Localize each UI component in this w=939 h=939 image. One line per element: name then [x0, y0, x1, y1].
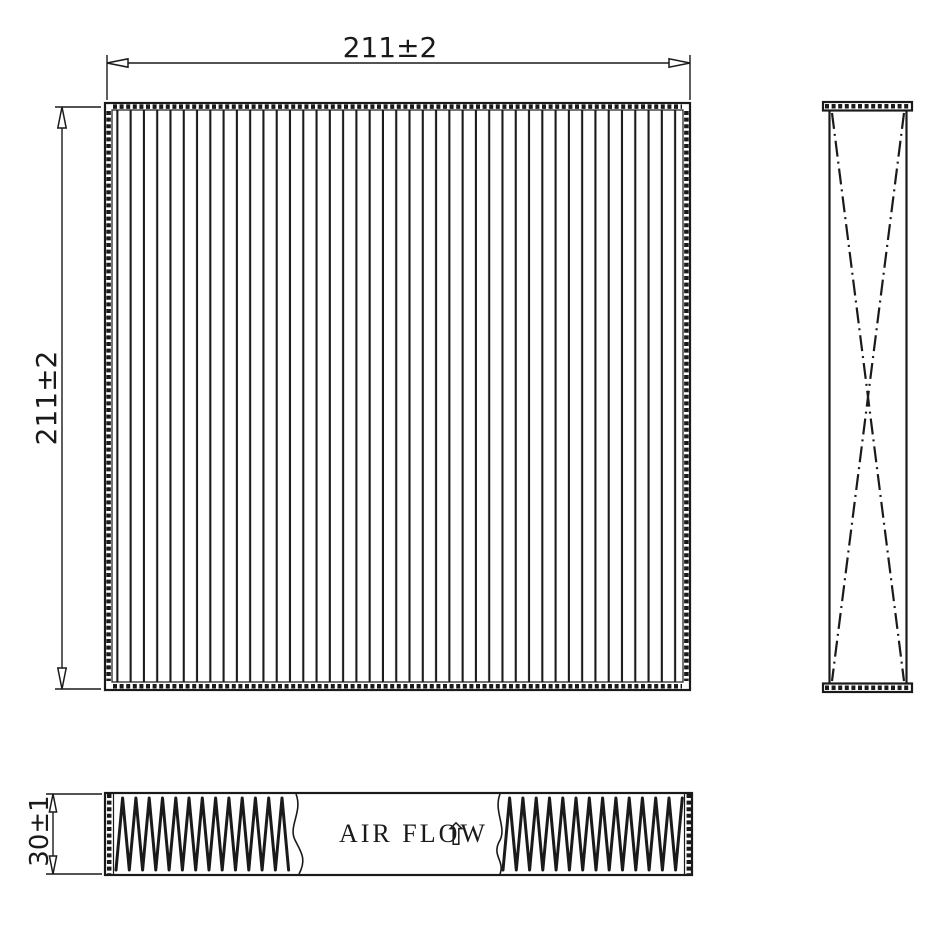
width-dimension: 211±2 [107, 31, 690, 100]
front-view [105, 103, 690, 690]
arrowhead-down-icon [58, 668, 66, 689]
height-dimension: 211±2 [30, 107, 101, 689]
side-view [823, 102, 912, 692]
arrowhead-up-icon [58, 107, 66, 128]
height-dim-label: 211±2 [30, 351, 63, 446]
air-flow-up-arrow-icon: ⇧ [443, 817, 469, 853]
bottom-view-pleats-right [503, 798, 682, 870]
front-view-pleats [112, 110, 683, 682]
bottom-view-pleats-left [116, 798, 289, 870]
break-line-right [497, 794, 502, 874]
break-line-left [293, 794, 303, 874]
width-dim-label: 211±2 [343, 31, 438, 64]
bottom-view: AIR FLOW ⇧ [105, 793, 692, 875]
drawing-canvas: 211±2 211±2 AIR FLOW ⇧ [0, 0, 939, 939]
filter-technical-drawing: 211±2 211±2 AIR FLOW ⇧ [0, 0, 939, 939]
depth-dimension: 30±1 [25, 794, 102, 874]
depth-dim-label: 30±1 [25, 795, 55, 866]
arrowhead-right-icon [669, 59, 690, 67]
side-view-cross-lines [832, 113, 904, 681]
arrowhead-left-icon [107, 59, 128, 67]
